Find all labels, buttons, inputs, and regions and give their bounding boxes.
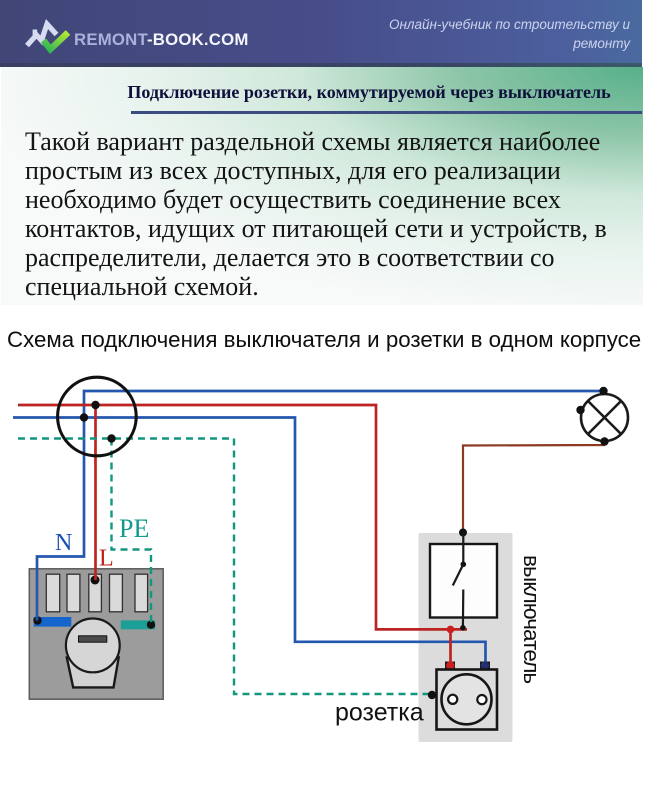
svg-text:L: L (99, 546, 114, 572)
svg-text:N: N (55, 530, 72, 556)
svg-text:розетка: розетка (335, 699, 424, 727)
svg-text:PE: PE (119, 514, 149, 543)
svg-text:выключатель: выключатель (519, 555, 544, 683)
